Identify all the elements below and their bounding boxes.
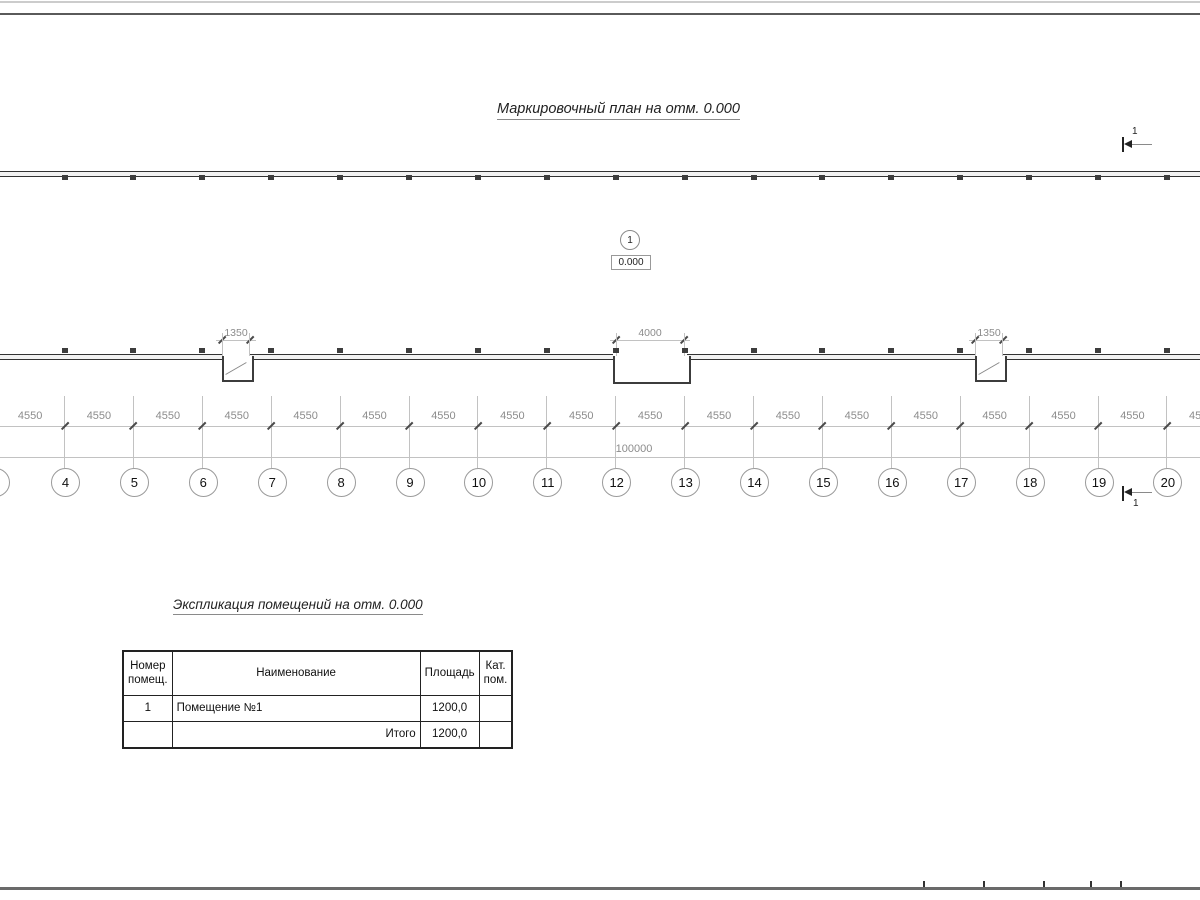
bay-dimension-label: 4550 <box>276 410 336 422</box>
column-mark <box>1095 348 1101 353</box>
table-row: 1 Помещение №1 1200,0 <box>123 695 512 721</box>
column-mark <box>475 175 481 180</box>
grid-bubble: 5 <box>120 468 149 497</box>
section-marker-bottom-bar <box>1122 486 1124 501</box>
grid-bubble: 6 <box>189 468 218 497</box>
titleblock-tick <box>983 881 985 887</box>
column-mark <box>337 175 343 180</box>
bay-dimension-label: 4550 <box>345 410 405 422</box>
column-mark <box>130 348 136 353</box>
titleblock-tick <box>923 881 925 887</box>
column-mark <box>199 175 205 180</box>
column-mark <box>888 175 894 180</box>
column-mark <box>751 175 757 180</box>
grid-bubble: 7 <box>258 468 287 497</box>
column-mark <box>62 175 68 180</box>
titleblock-tick <box>1090 881 1092 887</box>
section-marker-bottom-label: 1 <box>1133 498 1139 509</box>
column-mark <box>957 175 963 180</box>
titleblock-tick <box>1043 881 1045 887</box>
col-header-category: Кат. пом. <box>479 651 512 695</box>
bay-dimension-label: 4550 <box>413 410 473 422</box>
column-mark <box>751 348 757 353</box>
grid-bubble: 17 <box>947 468 976 497</box>
room-name-cell: Помещение №1 <box>172 695 420 721</box>
bay-dimension-label: 4550 <box>965 410 1025 422</box>
bay-dimension-label: 4550 <box>69 410 129 422</box>
column-mark <box>268 348 274 353</box>
column-mark <box>819 175 825 180</box>
grid-bubble: 13 <box>671 468 700 497</box>
column-mark <box>475 348 481 353</box>
column-mark <box>682 348 688 353</box>
bay-dimension-label: 4550 <box>896 410 956 422</box>
grid-extension-line <box>1098 396 1099 468</box>
bay-dimension-label: 4550 <box>1171 410 1200 422</box>
column-mark <box>406 175 412 180</box>
col-header-number: Номер помещ. <box>123 651 172 695</box>
titleblock-top-rule <box>0 887 1200 890</box>
grid-bubble: 18 <box>1016 468 1045 497</box>
grid-bubble: 12 <box>602 468 631 497</box>
column-mark <box>199 348 205 353</box>
bay-dimension-label: 4550 <box>138 410 198 422</box>
grid-extension-line <box>546 396 547 468</box>
grid-bubble-partial <box>0 468 10 497</box>
grid-extension-line <box>409 396 410 468</box>
bay-dimension-label: 4550 <box>1102 410 1162 422</box>
column-mark <box>544 348 550 353</box>
column-mark <box>1164 348 1170 353</box>
grid-bubble: 8 <box>327 468 356 497</box>
column-mark <box>613 175 619 180</box>
titleblock-tick <box>1120 881 1122 887</box>
column-mark <box>1164 175 1170 180</box>
grid-extension-line <box>477 396 478 468</box>
bay-dimension-label: 4550 <box>758 410 818 422</box>
grid-layer: 4567891011121314151617181920455045504550… <box>0 0 1200 900</box>
grid-bubble: 4 <box>51 468 80 497</box>
column-mark <box>268 175 274 180</box>
grid-extension-line <box>1166 396 1167 468</box>
room-area-cell: 1200,0 <box>420 695 479 721</box>
bay-dimension-label: 4550 <box>689 410 749 422</box>
column-mark <box>130 175 136 180</box>
column-mark <box>888 348 894 353</box>
grid-bubble: 9 <box>396 468 425 497</box>
column-mark <box>682 175 688 180</box>
bay-dimension-label: 4550 <box>1034 410 1094 422</box>
room-schedule-table: Номер помещ. Наименование Площадь Кат. п… <box>122 650 513 749</box>
grid-extension-line <box>891 396 892 468</box>
column-mark <box>1026 175 1032 180</box>
grid-extension-line <box>64 396 65 468</box>
grid-extension-line <box>271 396 272 468</box>
column-mark <box>819 348 825 353</box>
grid-extension-line <box>822 396 823 468</box>
total-empty-cell <box>123 721 172 748</box>
col-header-area: Площадь <box>420 651 479 695</box>
bay-dimension-label: 4550 <box>551 410 611 422</box>
grid-extension-line <box>615 396 616 468</box>
grid-extension-line <box>133 396 134 468</box>
table-total-row: Итого 1200,0 <box>123 721 512 748</box>
room-number-cell: 1 <box>123 695 172 721</box>
bay-dimension-label: 4550 <box>482 410 542 422</box>
room-category-cell <box>479 695 512 721</box>
col-header-name: Наименование <box>172 651 420 695</box>
grid-bubble: 20 <box>1153 468 1182 497</box>
column-mark <box>957 348 963 353</box>
drawing-sheet: Маркировочный план на отм. 0.000 1 1 0.0… <box>0 0 1200 900</box>
grid-bubble: 10 <box>464 468 493 497</box>
column-mark <box>1026 348 1032 353</box>
grid-extension-line <box>1029 396 1030 468</box>
bay-dimension-label: 4550 <box>0 410 60 422</box>
grid-extension-line <box>340 396 341 468</box>
section-arrow-icon <box>1124 488 1132 496</box>
column-mark <box>544 175 550 180</box>
grid-extension-line <box>202 396 203 468</box>
column-mark <box>1095 175 1101 180</box>
grid-bubble: 16 <box>878 468 907 497</box>
column-mark <box>337 348 343 353</box>
total-value-cell: 1200,0 <box>420 721 479 748</box>
grid-bubble: 14 <box>740 468 769 497</box>
bay-dimension-label: 4550 <box>207 410 267 422</box>
bay-dimension-label: 4550 <box>620 410 680 422</box>
grid-bubble: 19 <box>1085 468 1114 497</box>
column-mark <box>62 348 68 353</box>
grid-extension-line <box>684 396 685 468</box>
grid-extension-line <box>960 396 961 468</box>
total-category-cell <box>479 721 512 748</box>
column-mark <box>406 348 412 353</box>
grid-bubble: 11 <box>533 468 562 497</box>
total-label-cell: Итого <box>172 721 420 748</box>
bay-dimension-label: 4550 <box>827 410 887 422</box>
column-mark <box>613 348 619 353</box>
grid-extension-line <box>753 396 754 468</box>
schedule-title: Экспликация помещений на отм. 0.000 <box>173 597 423 615</box>
grid-bubble: 15 <box>809 468 838 497</box>
